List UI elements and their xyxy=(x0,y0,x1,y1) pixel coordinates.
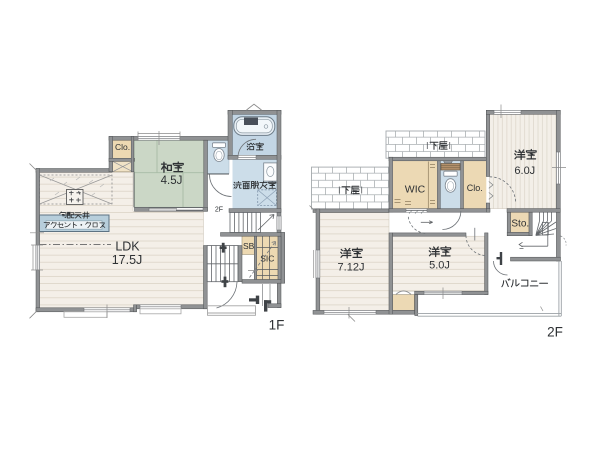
svg-text:7.12J: 7.12J xyxy=(338,262,365,274)
svg-text:WIC: WIC xyxy=(405,183,426,195)
svg-text:1F: 1F xyxy=(269,318,285,333)
svg-text:5.0J: 5.0J xyxy=(429,260,450,272)
svg-text:SIC: SIC xyxy=(260,254,274,264)
svg-text:17.5J: 17.5J xyxy=(112,253,143,267)
svg-text:6.0J: 6.0J xyxy=(514,165,535,177)
svg-text:Sto.: Sto. xyxy=(511,219,529,230)
svg-text:SB: SB xyxy=(243,241,255,251)
svg-text:4.5J: 4.5J xyxy=(161,175,183,187)
svg-text:LDK: LDK xyxy=(115,240,140,254)
svg-text:Clo.: Clo. xyxy=(467,183,483,193)
svg-text:Clo.: Clo. xyxy=(115,142,130,152)
svg-text:2F: 2F xyxy=(547,325,563,340)
svg-text:2F: 2F xyxy=(215,207,223,214)
